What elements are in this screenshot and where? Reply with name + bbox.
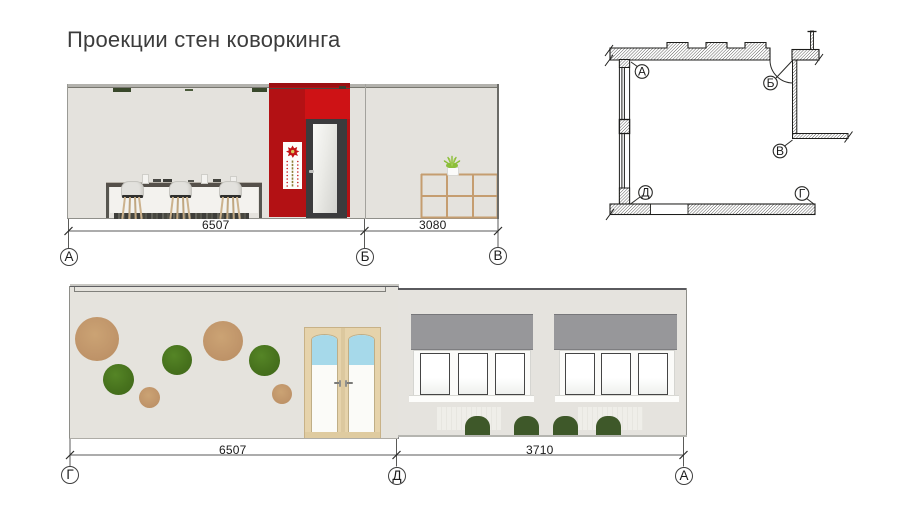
svg-text:А: А xyxy=(638,65,646,79)
svg-text:В: В xyxy=(776,144,784,158)
svg-text:Г: Г xyxy=(799,187,806,201)
svg-text:Б: Б xyxy=(767,76,775,90)
svg-text:Д: Д xyxy=(641,186,649,200)
